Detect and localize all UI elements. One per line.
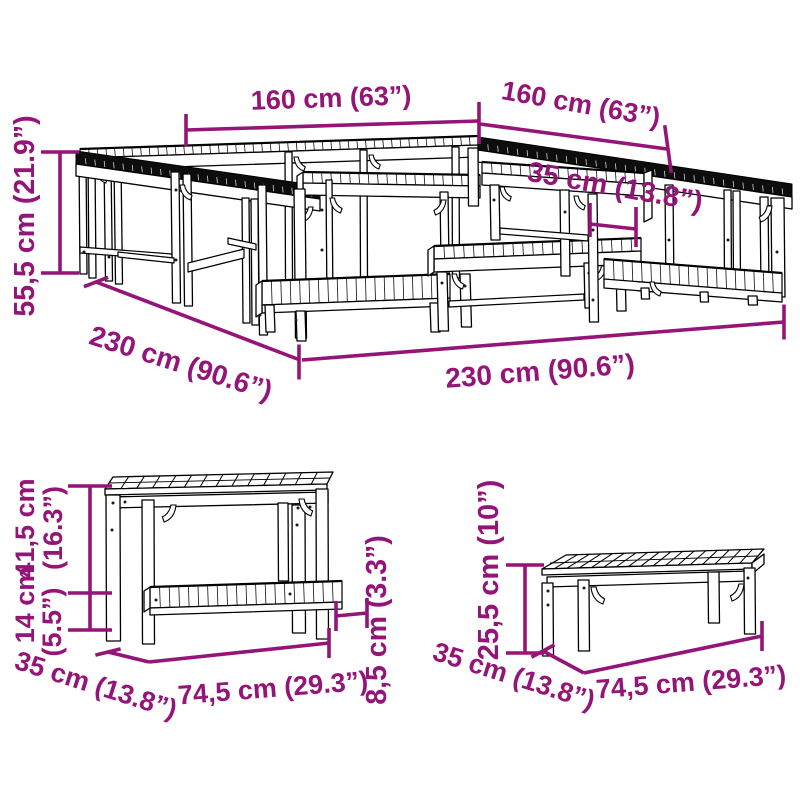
- svg-text:41,5 cm: 41,5 cm: [10, 478, 40, 577]
- svg-text:14 cm: 14 cm: [10, 567, 40, 644]
- svg-text:55,5 cm (21.9”): 55,5 cm (21.9”): [9, 115, 41, 316]
- svg-text:25,5 cm (10”): 25,5 cm (10”): [473, 480, 505, 661]
- svg-text:(16.3”): (16.3”): [38, 486, 68, 570]
- svg-text:160 cm (63”): 160 cm (63”): [250, 80, 412, 116]
- svg-text:(5.5”): (5.5”): [37, 587, 67, 656]
